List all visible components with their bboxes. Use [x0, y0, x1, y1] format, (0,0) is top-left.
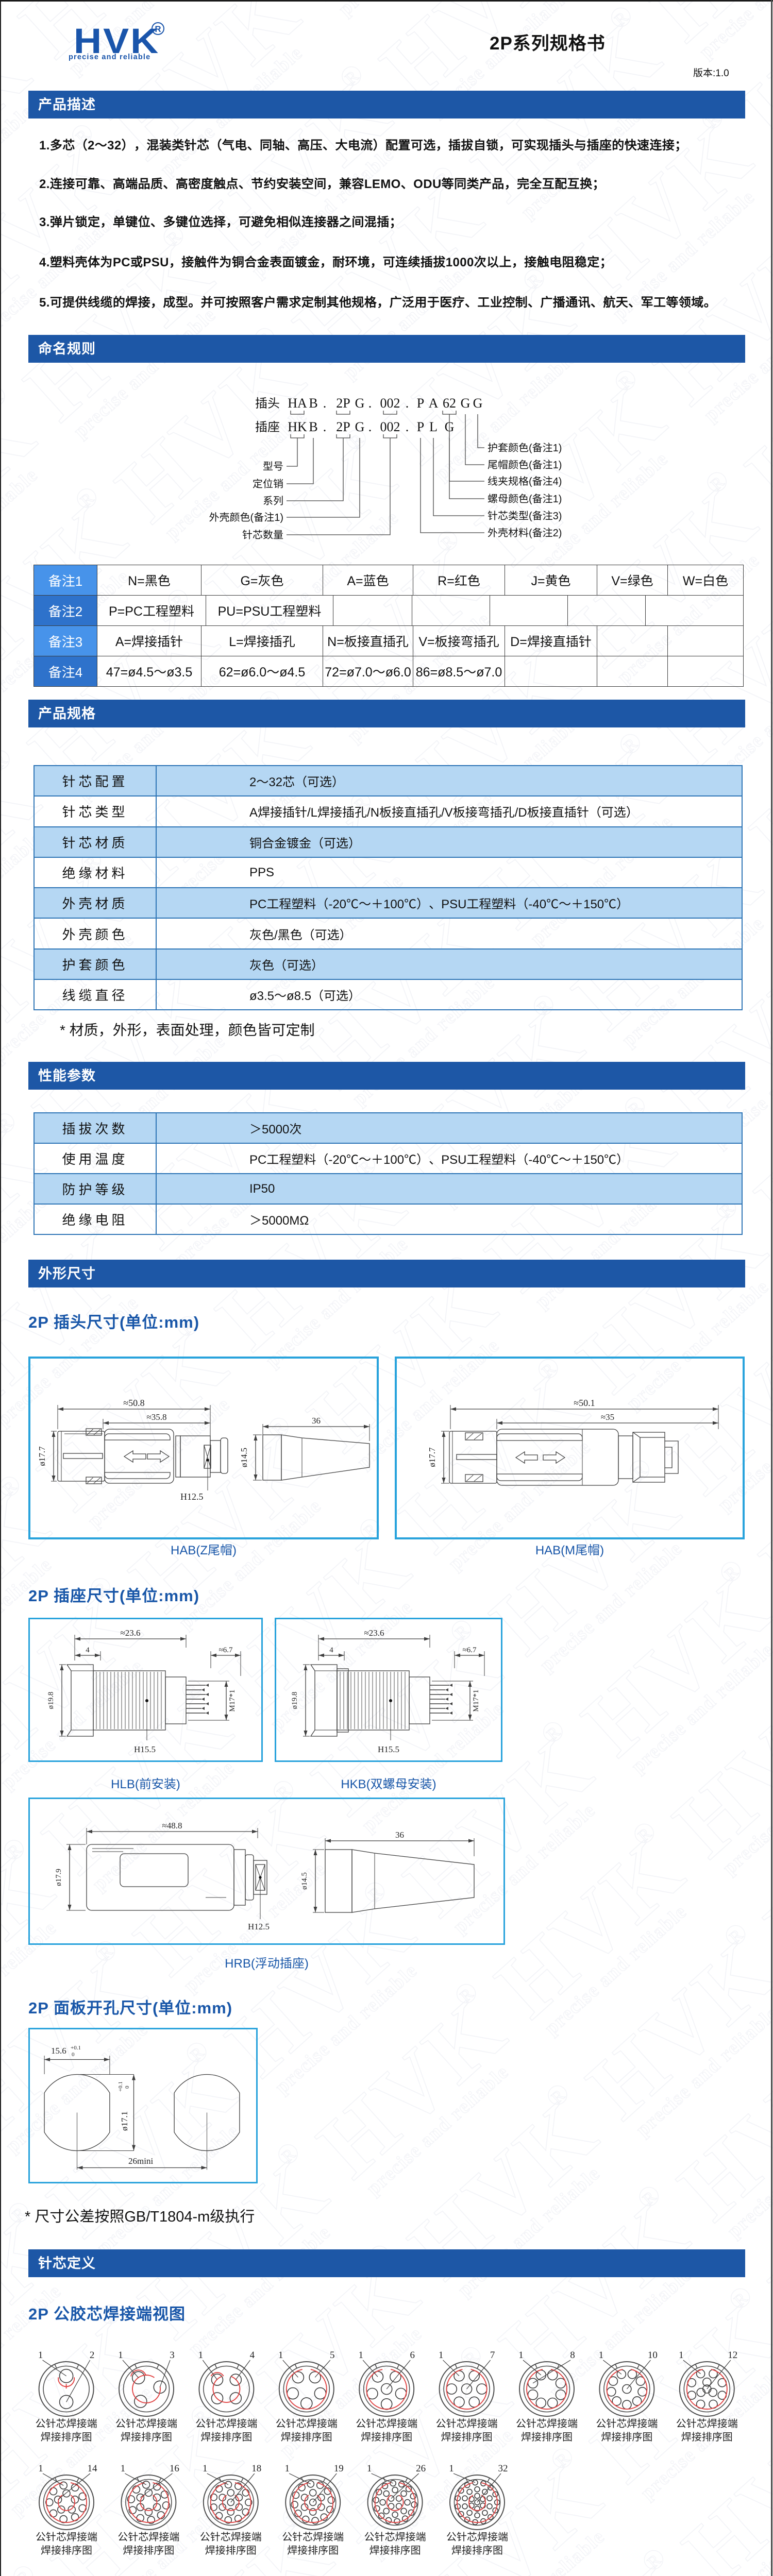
svg-text:1: 1 — [284, 2463, 290, 2474]
svg-text:1: 1 — [518, 2350, 524, 2361]
svg-text:1: 1 — [358, 2350, 363, 2361]
svg-text:+0.1: +0.1 — [117, 2081, 124, 2092]
svg-text:12: 12 — [728, 2350, 737, 2361]
svg-text:ø17.1: ø17.1 — [120, 2111, 129, 2130]
svg-text:型号: 型号 — [263, 461, 283, 472]
svg-text:0: 0 — [72, 2052, 75, 2058]
svg-text:定位销: 定位销 — [253, 479, 283, 490]
svg-text:26mini: 26mini — [128, 2156, 153, 2166]
svg-text:19: 19 — [334, 2463, 344, 2474]
svg-text:16: 16 — [170, 2463, 179, 2474]
svg-text:1: 1 — [367, 2463, 372, 2474]
svg-text:B: B — [309, 396, 317, 411]
svg-text:2P: 2P — [336, 419, 350, 434]
svg-text:+0.1: +0.1 — [71, 2045, 81, 2051]
svg-text:插头: 插头 — [255, 397, 280, 411]
svg-text:1: 1 — [599, 2350, 604, 2361]
svg-text:.: . — [406, 419, 409, 434]
svg-text:1: 1 — [439, 2350, 444, 2361]
svg-text:.: . — [406, 396, 409, 411]
svg-text:≈23.6: ≈23.6 — [120, 1628, 140, 1638]
svg-text:G: G — [473, 396, 483, 411]
svg-text:18: 18 — [251, 2463, 261, 2474]
svg-text:5: 5 — [330, 2350, 335, 2361]
svg-text:36: 36 — [312, 1416, 321, 1426]
svg-text:≈6.7: ≈6.7 — [219, 1646, 233, 1654]
svg-text:P: P — [417, 419, 424, 434]
svg-text:1: 1 — [38, 2463, 43, 2474]
svg-text:外壳材料(备注2): 外壳材料(备注2) — [488, 528, 562, 539]
svg-text:1: 1 — [278, 2350, 283, 2361]
svg-text:L: L — [429, 419, 438, 434]
svg-text:H15.5: H15.5 — [378, 1744, 399, 1754]
svg-text:.: . — [368, 419, 372, 434]
svg-text:护套颜色(备注1): 护套颜色(备注1) — [488, 443, 562, 454]
svg-text:002: 002 — [380, 419, 400, 434]
svg-text:.: . — [368, 396, 372, 411]
svg-text:6: 6 — [410, 2350, 415, 2361]
svg-text:≈48.8: ≈48.8 — [162, 1821, 182, 1831]
svg-text:H12.5: H12.5 — [248, 1922, 270, 1931]
svg-text:.: . — [323, 396, 327, 411]
svg-text:ø17.7: ø17.7 — [427, 1447, 437, 1467]
svg-text:≈35.8: ≈35.8 — [146, 1412, 166, 1422]
svg-text:≈50.1: ≈50.1 — [574, 1398, 595, 1408]
svg-text:1: 1 — [679, 2350, 684, 2361]
svg-text:2P: 2P — [336, 396, 350, 411]
svg-text:外壳颜色(备注1): 外壳颜色(备注1) — [209, 512, 283, 523]
svg-text:A: A — [429, 396, 439, 411]
svg-text:4: 4 — [86, 1646, 90, 1654]
svg-text:HK: HK — [288, 419, 307, 434]
svg-text:≈50.8: ≈50.8 — [123, 1398, 144, 1408]
svg-text:32: 32 — [498, 2463, 508, 2474]
svg-text:4: 4 — [329, 1646, 333, 1654]
svg-text:系列: 系列 — [263, 496, 283, 507]
svg-text:H15.5: H15.5 — [134, 1744, 156, 1754]
svg-text:G: G — [355, 419, 365, 434]
svg-text:1: 1 — [198, 2350, 204, 2361]
svg-text:4: 4 — [250, 2350, 255, 2361]
svg-text:ø19.8: ø19.8 — [47, 1692, 55, 1709]
svg-text:M17*1: M17*1 — [472, 1689, 480, 1711]
svg-text:≈6.7: ≈6.7 — [463, 1646, 477, 1654]
svg-text:针芯类型(备注3): 针芯类型(备注3) — [488, 511, 562, 522]
svg-text:线夹规格(备注4): 线夹规格(备注4) — [488, 476, 562, 487]
svg-text:15.6: 15.6 — [51, 2046, 66, 2056]
svg-text:G: G — [355, 396, 365, 411]
svg-text:插座: 插座 — [255, 420, 280, 434]
svg-text:ø17.7: ø17.7 — [37, 1446, 47, 1466]
svg-text:62: 62 — [443, 396, 456, 411]
svg-text:002: 002 — [380, 396, 400, 411]
svg-text:≈23.6: ≈23.6 — [364, 1628, 384, 1638]
svg-text:尾帽颜色(备注1): 尾帽颜色(备注1) — [488, 460, 562, 471]
svg-text:1: 1 — [449, 2463, 454, 2474]
svg-text:10: 10 — [648, 2350, 658, 2361]
svg-text:螺母颜色(备注1): 螺母颜色(备注1) — [488, 494, 562, 505]
svg-text:针芯数量: 针芯数量 — [242, 530, 283, 541]
svg-text:1: 1 — [38, 2350, 43, 2361]
svg-text:.: . — [323, 419, 327, 434]
svg-text:1: 1 — [121, 2463, 126, 2474]
svg-text:26: 26 — [416, 2463, 426, 2474]
svg-text:2: 2 — [90, 2350, 95, 2361]
svg-text:3: 3 — [170, 2350, 175, 2361]
svg-text:ø14.5: ø14.5 — [239, 1448, 249, 1467]
svg-text:HA: HA — [288, 396, 307, 411]
svg-text:G: G — [461, 396, 470, 411]
svg-text:8: 8 — [570, 2350, 575, 2361]
svg-text:14: 14 — [88, 2463, 98, 2474]
svg-text:0: 0 — [124, 2086, 130, 2089]
svg-text:1: 1 — [203, 2463, 208, 2474]
svg-text:ø14.5: ø14.5 — [300, 1872, 309, 1890]
svg-text:ø19.8: ø19.8 — [291, 1692, 299, 1709]
svg-text:1: 1 — [118, 2350, 123, 2361]
svg-text:B: B — [309, 419, 317, 434]
svg-text:36: 36 — [395, 1830, 404, 1840]
svg-text:P: P — [417, 396, 424, 411]
svg-text:H12.5: H12.5 — [180, 1492, 204, 1502]
svg-text:M17*1: M17*1 — [228, 1689, 237, 1711]
svg-text:≈35: ≈35 — [601, 1412, 614, 1422]
svg-text:7: 7 — [490, 2350, 495, 2361]
svg-text:ø17.9: ø17.9 — [55, 1869, 63, 1886]
